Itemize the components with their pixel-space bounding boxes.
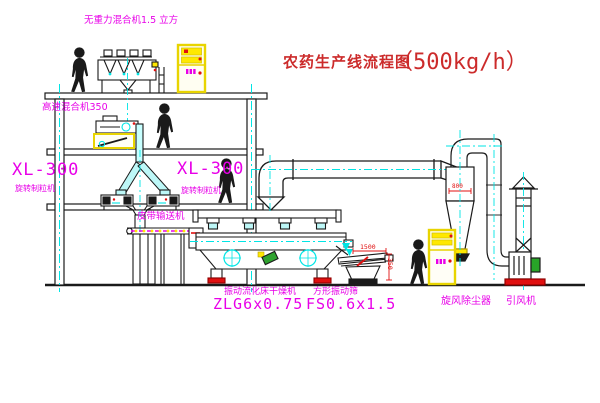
dimension-cyclone-width: 800: [452, 183, 463, 190]
label-granulator-model-left: XL-300: [12, 162, 79, 179]
label-high-speed-mixer: 高速混合机350: [42, 103, 108, 113]
label-belt-conveyor: 皮带输送机: [137, 212, 185, 222]
y-chute-drawing: [119, 162, 169, 194]
person-icon: [71, 47, 88, 92]
fluid-bed-dryer-drawing: [189, 210, 353, 283]
page-title-capacity: （500kg/h）: [391, 44, 528, 76]
belt-conveyor-drawing: [127, 228, 197, 284]
control-cabinet-top: [178, 45, 205, 92]
label-fan: 引风机: [506, 297, 536, 307]
dimension-screen-length: 1500: [360, 243, 376, 251]
label-dryer-model: ZLG6x0.75: [213, 297, 303, 312]
dimension-screen-height: 350: [386, 258, 394, 270]
flow-diagram: 农药生产线流程图 （500kg/h） 无重力混合机1.5 立方 高速混合机350…: [0, 0, 600, 403]
label-granulator-model-mid: XL-300: [177, 161, 244, 178]
label-zero-gravity-mixer: 无重力混合机1.5 立方: [84, 16, 178, 26]
exhaust-duct-drawing: [252, 155, 460, 214]
person-icon: [156, 103, 173, 148]
control-cabinet-right: [429, 230, 455, 284]
label-granulator-name-left: 旋转制粒机: [15, 185, 55, 193]
label-screen-model: FS0.6x1.5: [306, 297, 396, 312]
label-granulator-name-mid: 旋转制粒机: [181, 187, 221, 195]
person-icon: [410, 239, 427, 284]
fan-drawing: [505, 252, 545, 285]
label-cyclone: 旋风除尘器: [441, 297, 491, 307]
